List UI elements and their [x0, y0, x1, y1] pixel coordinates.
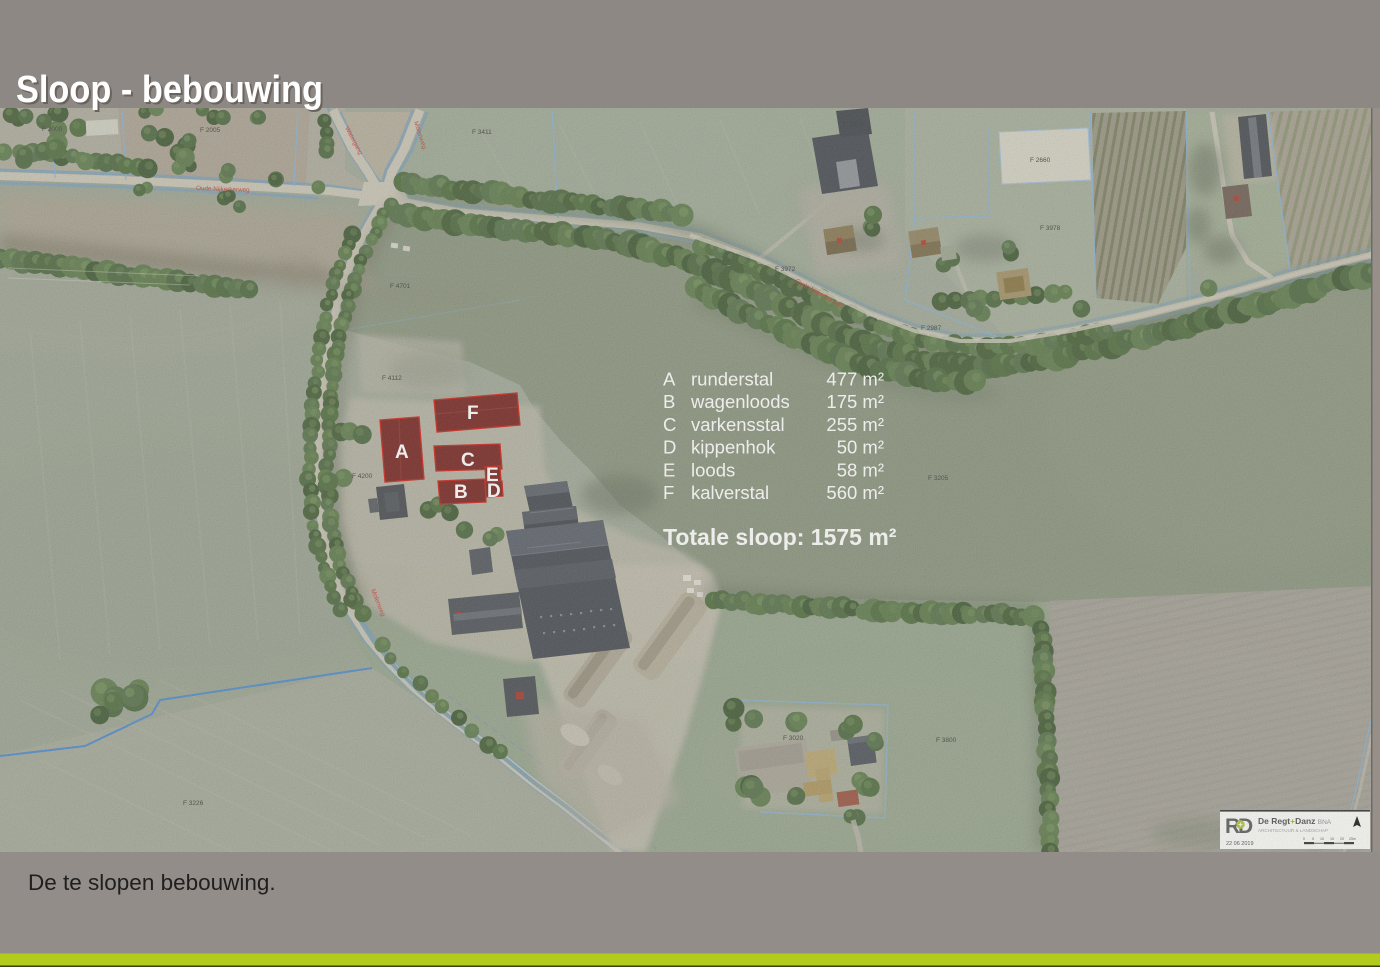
svg-text:Sloop - bebouwing: Sloop - bebouwing	[16, 69, 323, 111]
svg-text:De te slopen bebouwing.: De te slopen bebouwing.	[28, 870, 276, 895]
